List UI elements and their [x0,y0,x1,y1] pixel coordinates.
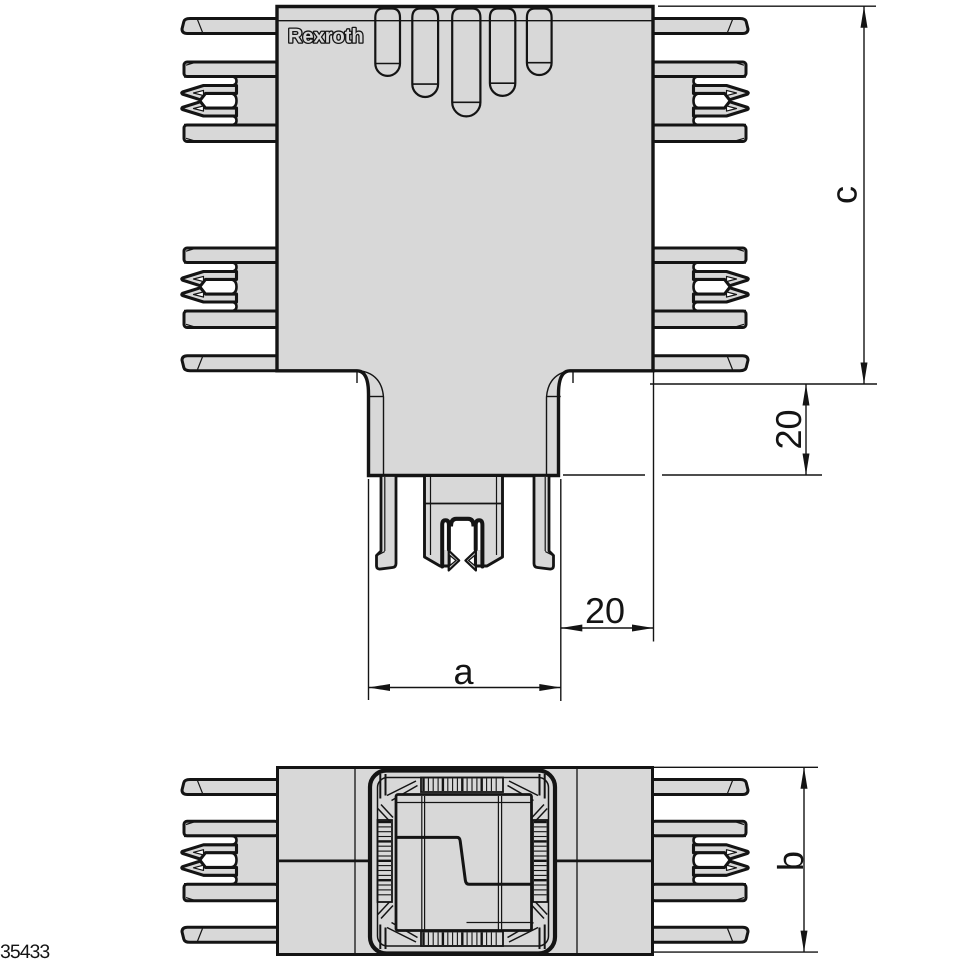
svg-text:20: 20 [768,409,809,449]
svg-text:c: c [824,186,865,204]
svg-text:35433: 35433 [0,941,49,963]
svg-text:a: a [453,651,474,692]
svg-text:b: b [770,851,811,871]
svg-text:20: 20 [585,590,625,631]
svg-text:Rexroth: Rexroth [288,26,364,48]
